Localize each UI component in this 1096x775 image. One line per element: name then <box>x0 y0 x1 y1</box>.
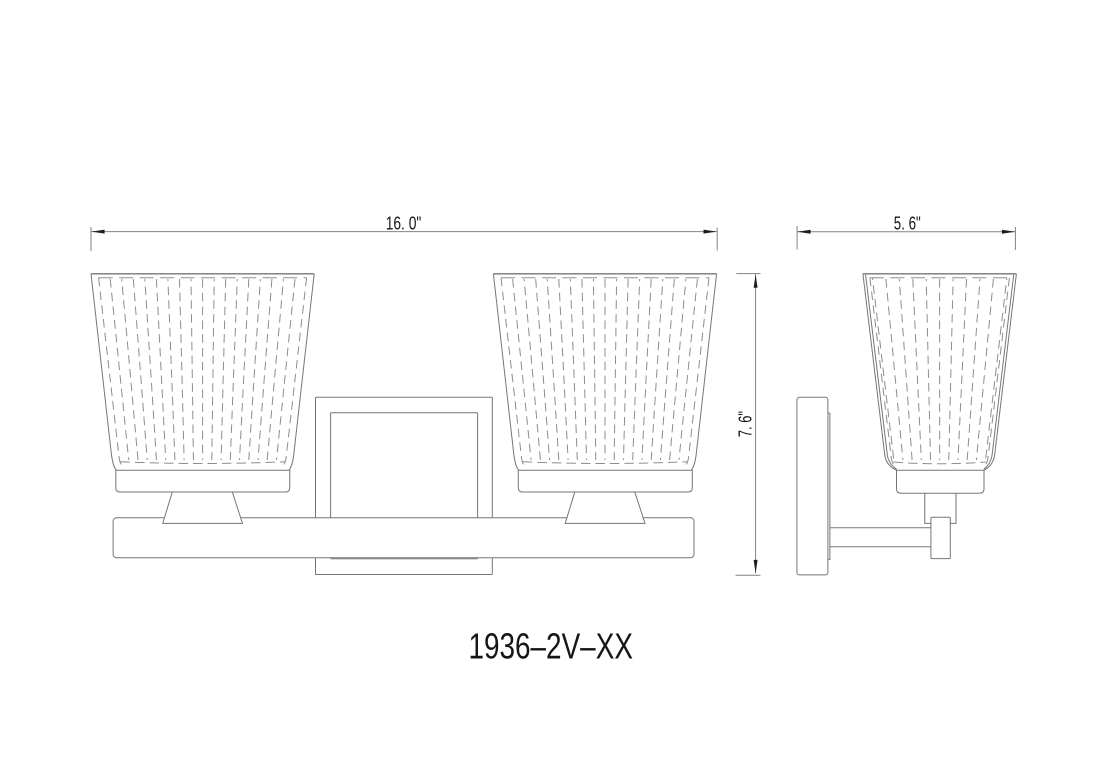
svg-text:16. 0": 16. 0" <box>386 213 422 233</box>
svg-text:5. 6": 5. 6" <box>894 213 921 233</box>
svg-text:1936–2V–XX: 1936–2V–XX <box>468 626 633 667</box>
svg-text:7. 6": 7. 6" <box>735 411 755 437</box>
